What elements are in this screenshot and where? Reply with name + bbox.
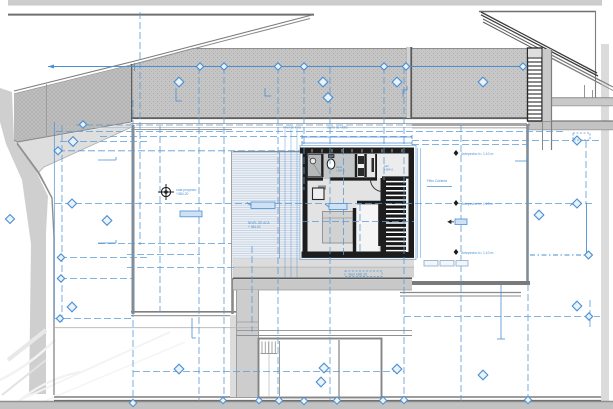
svg-text:+384.6: +384.6	[384, 168, 393, 172]
svg-text:Antepecho h= 1.10 m: Antepecho h= 1.10 m	[461, 251, 494, 255]
svg-text:+ 384.60: + 384.60	[248, 225, 261, 229]
svg-text:Antepecho h= 1.10 m: Antepecho h= 1.10 m	[461, 202, 494, 206]
svg-text:+384.20: +384.20	[176, 192, 188, 196]
svg-text:Antepecho h= 1.10 m: Antepecho h= 1.10 m	[461, 152, 494, 156]
svg-text:nivel de losa: nivel de losa	[283, 126, 301, 130]
svg-text:cierre de vidrio: cierre de vidrio	[327, 126, 348, 130]
svg-text:nivel +381.20: nivel +381.20	[348, 273, 367, 277]
svg-text:Filtro Cubierta: Filtro Cubierta	[427, 179, 447, 183]
